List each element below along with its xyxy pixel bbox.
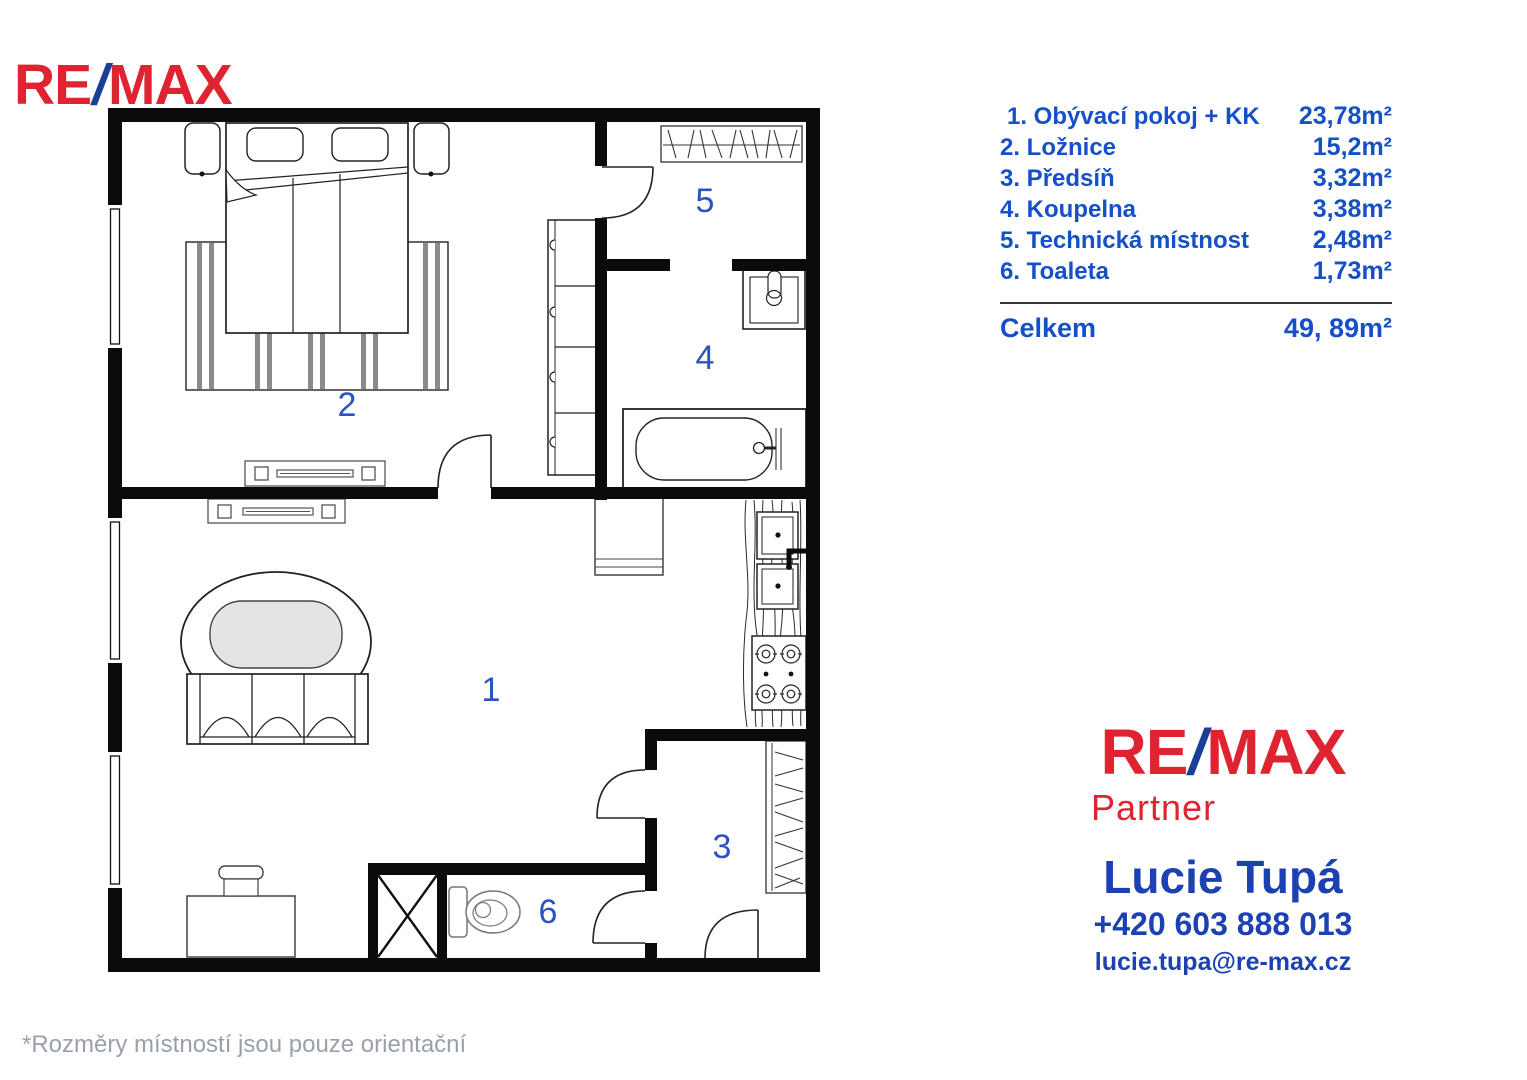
legend-area: 23,78m²	[1299, 101, 1392, 131]
sofa	[187, 674, 368, 744]
room-label-living: 1	[482, 671, 501, 709]
wardrobe	[548, 220, 597, 475]
agent-card: RE/MAX Partner Lucie Tupá +420 603 888 0…	[1058, 720, 1388, 976]
legend-area: 15,2m²	[1313, 132, 1392, 162]
fridge-cabinet	[595, 498, 663, 575]
shaft-x	[378, 873, 437, 958]
agent-logo-max: MAX	[1206, 716, 1345, 788]
legend-label: 5. Technická místnost	[1000, 226, 1249, 256]
legend-label: 6. Toaleta	[1000, 257, 1109, 287]
agent-email: lucie.tupa@re-max.cz	[1058, 948, 1388, 976]
legend-divider	[1000, 302, 1392, 304]
legend-total-row: Celkem 49, 89m²	[1000, 313, 1392, 344]
room-legend: 1. Obývací pokoj + KK 23,78m² 2. Ložnice…	[1000, 101, 1392, 344]
legend-label: 2. Ložnice	[1000, 133, 1116, 163]
room-label-bedroom: 2	[338, 386, 357, 424]
remax-logo-max: MAX	[108, 53, 232, 117]
agent-logo-re: RE	[1101, 716, 1188, 788]
legend-row-6: 6. Toaleta 1,73m²	[1000, 256, 1392, 287]
agent-remax-logo: RE/MAX	[1058, 720, 1388, 784]
legend-row-1: 1. Obývací pokoj + KK 23,78m²	[1000, 101, 1392, 132]
chair	[219, 866, 263, 896]
footer-note: *Rozměry místností jsou pouze orientační	[22, 1030, 466, 1060]
room-label-bathroom: 4	[696, 339, 715, 377]
windows	[108, 205, 122, 888]
legend-label: 4. Koupelna	[1000, 195, 1136, 225]
agent-phone: +420 603 888 013	[1058, 906, 1388, 942]
legend-label: 1. Obývací pokoj + KK	[1000, 102, 1260, 132]
legend-total-label: Celkem	[1000, 313, 1096, 344]
legend-area: 3,38m²	[1313, 194, 1392, 224]
legend-row-2: 2. Ložnice 15,2m²	[1000, 132, 1392, 163]
legend-row-3: 3. Předsíň 3,32m²	[1000, 163, 1392, 194]
tech-room-rack	[661, 126, 802, 162]
bedroom-radiator	[245, 461, 385, 486]
hallway-rack	[766, 741, 806, 893]
agent-logo-slash-icon: /	[1187, 716, 1206, 788]
legend-area: 2,48m²	[1313, 225, 1392, 255]
agent-brand-sub: Partner	[1058, 786, 1388, 830]
legend-row-5: 5. Technická místnost 2,48m²	[1000, 225, 1392, 256]
legend-area: 3,32m²	[1313, 163, 1392, 193]
toilet	[449, 887, 520, 937]
desk	[187, 896, 295, 957]
remax-logo-slash-icon: /	[91, 53, 108, 117]
room-label-techroom: 5	[696, 182, 715, 220]
legend-row-4: 4. Koupelna 3,38m²	[1000, 194, 1392, 225]
bathtub	[623, 409, 806, 489]
stove	[752, 636, 806, 710]
legend-label: 3. Předsíň	[1000, 164, 1115, 194]
remax-logo: RE/MAX	[14, 56, 232, 114]
legend-area: 1,73m²	[1313, 256, 1392, 286]
legend-total-area: 49, 89m²	[1284, 313, 1392, 344]
remax-logo-re: RE	[14, 53, 91, 117]
agent-name: Lucie Tupá	[1058, 852, 1388, 902]
double-bed	[226, 123, 408, 333]
livingroom-radiator	[208, 499, 345, 523]
room-label-toilet: 6	[539, 893, 558, 931]
room-label-hallway: 3	[713, 828, 732, 866]
bathroom-sink	[743, 268, 805, 329]
